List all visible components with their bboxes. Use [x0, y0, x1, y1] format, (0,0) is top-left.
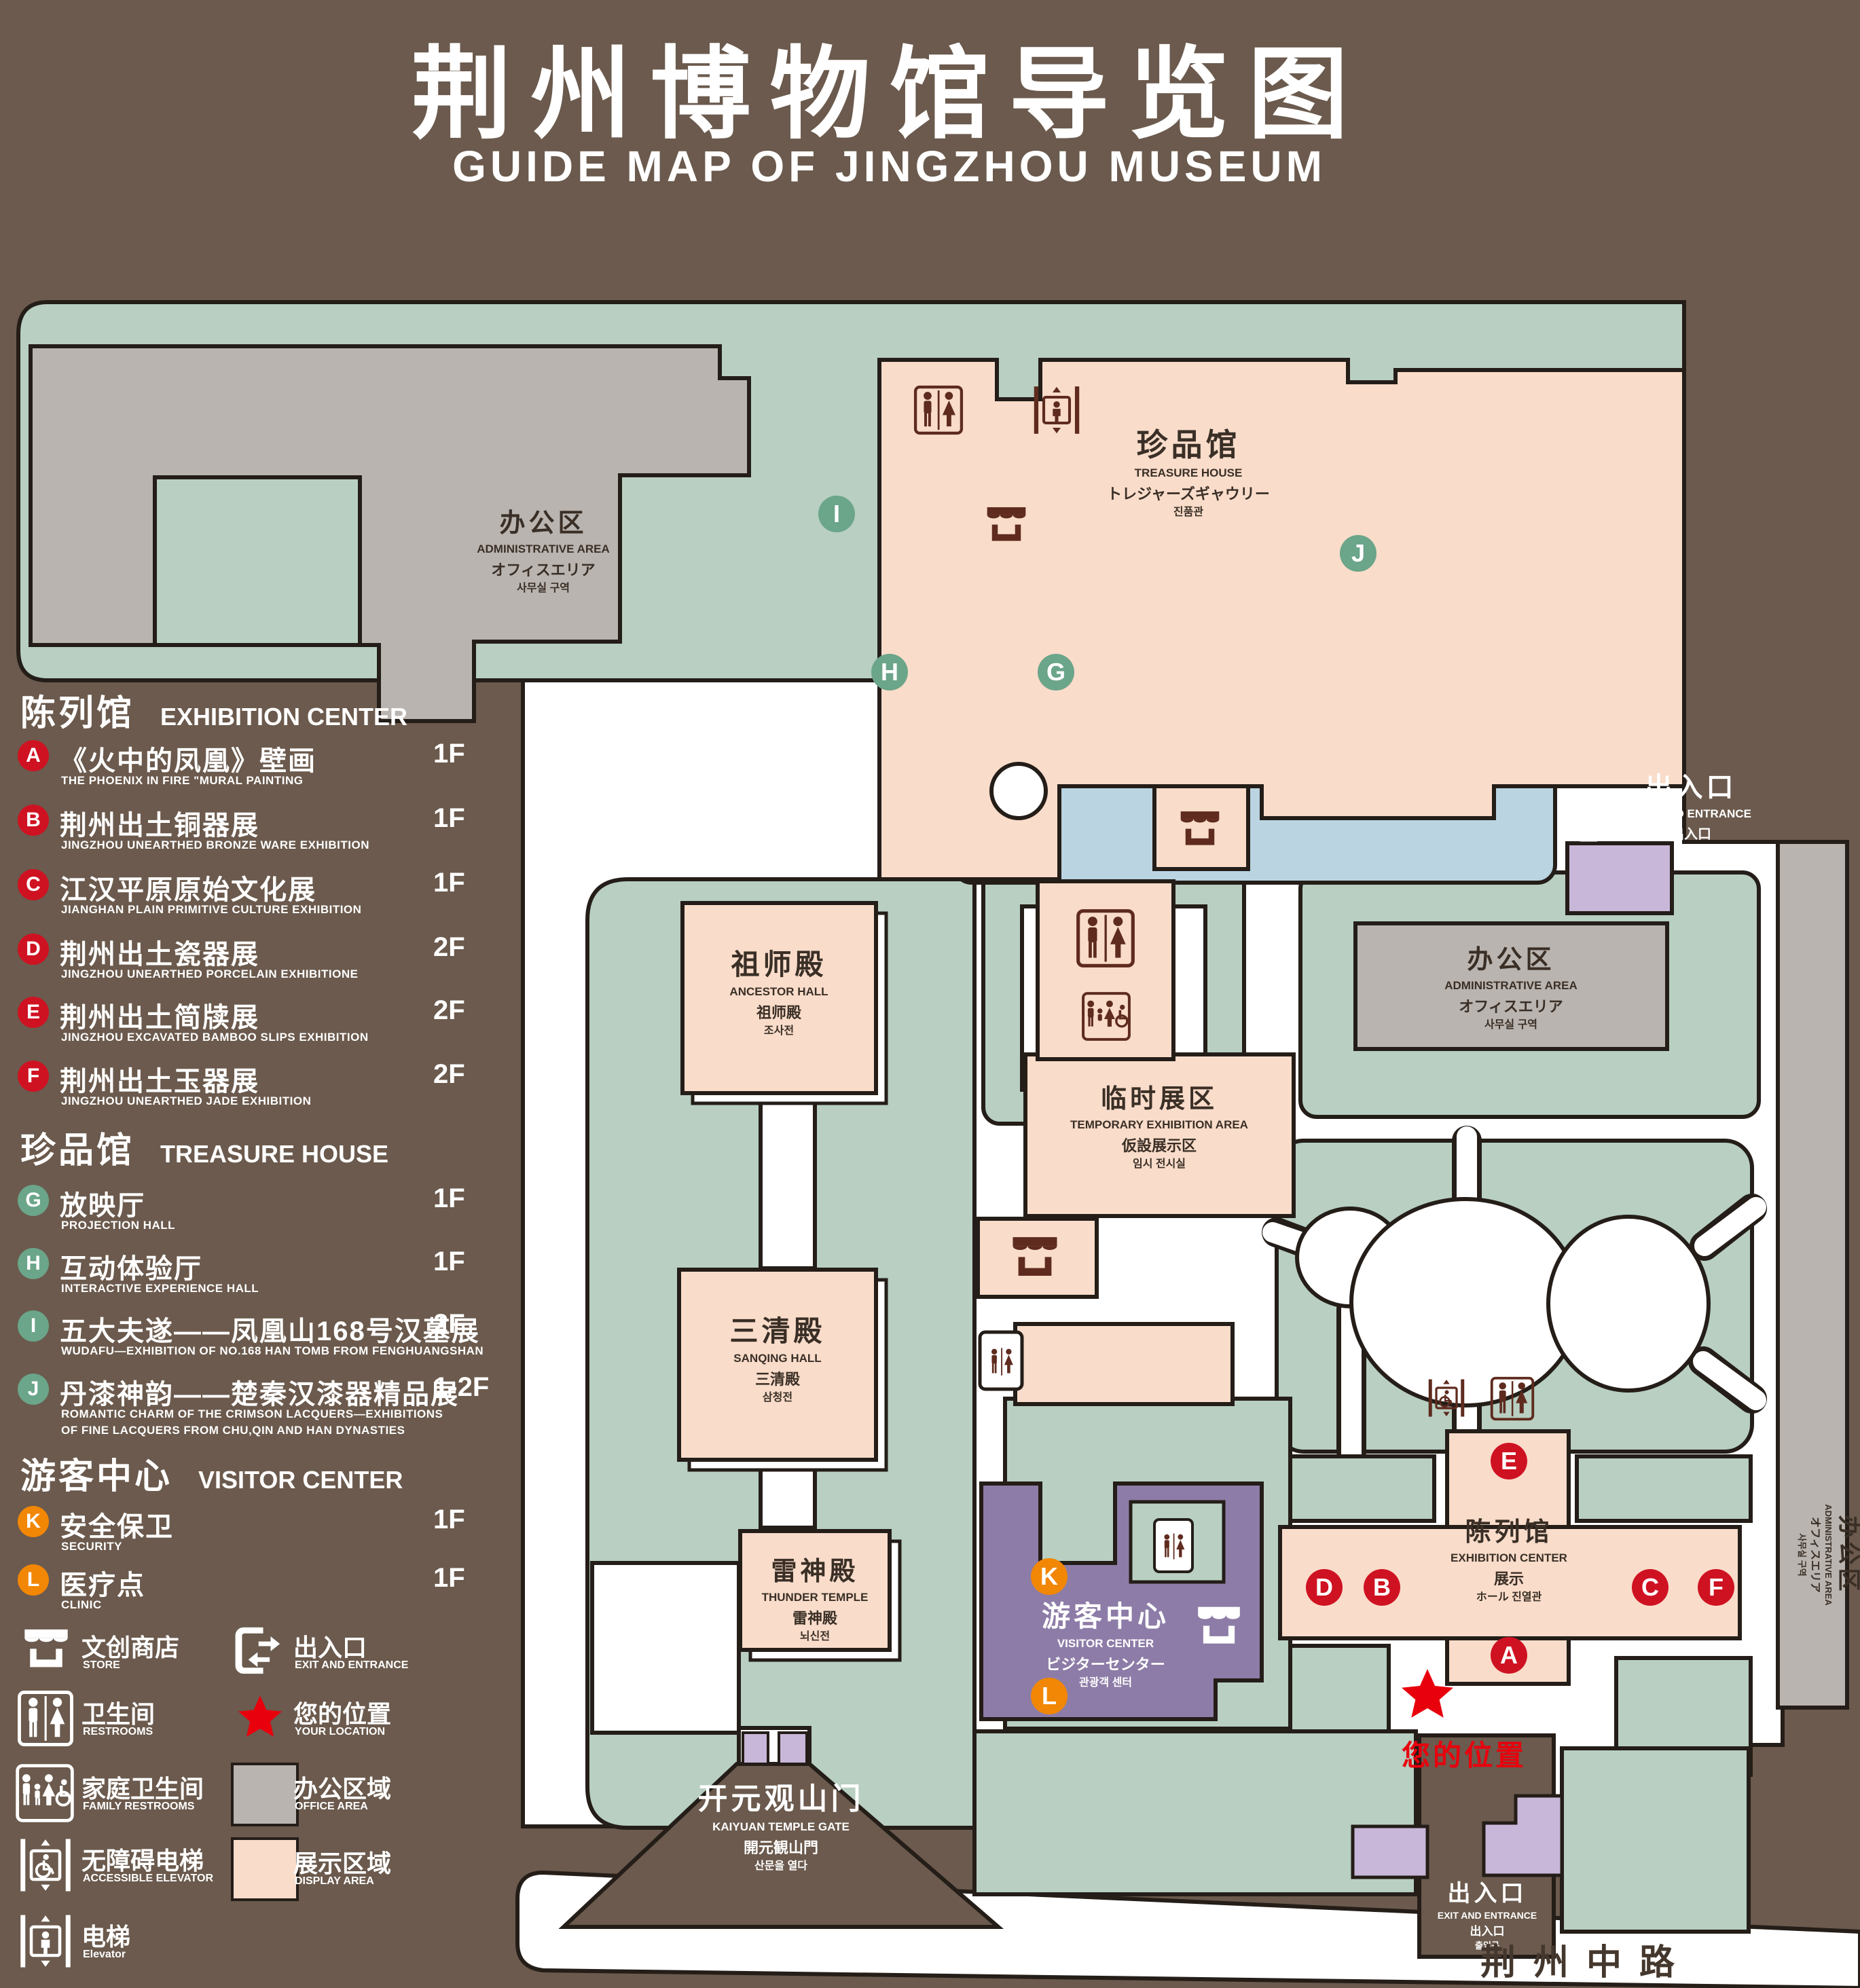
label-en: ADMINISTRATIVE AREA	[1375, 980, 1647, 991]
symbol-sublabel: ACCESSIBLE ELEVATOR	[83, 1873, 213, 1885]
legend-item-label[interactable]: 互动体验厅	[60, 1247, 202, 1286]
label-ja: 祖师殿	[643, 1006, 915, 1020]
legend-item-floor: 1F	[433, 739, 465, 769]
section-title-en: TREASURE HOUSE	[160, 1140, 388, 1168]
legend-item-floor: 1F	[433, 868, 465, 898]
your-location-label: 您的位置	[1402, 1733, 1527, 1774]
label-ja: トレジャーズギャウリー	[1053, 487, 1324, 502]
label-temporary-exhibition: 临时展区 TEMPORARY EXHIBITION AREA 仮設展示区 임시 …	[1023, 1086, 1295, 1170]
store-icon	[17, 1624, 75, 1676]
legend-item-sublabel: CLINIC	[61, 1598, 102, 1612]
label-ja: 開元観山門	[645, 1841, 917, 1856]
your-location-star-icon	[234, 1692, 287, 1745]
green-wall-band	[974, 1731, 1416, 1894]
label-en: TREASURE HOUSE	[1053, 467, 1324, 479]
label-en: TEMPORARY EXHIBITION AREA	[1023, 1119, 1295, 1130]
badge-letter: C	[26, 873, 41, 896]
legend-item-sublabel: ROMANTIC CHARM OF THE CRIMSON LACQUERS—E…	[61, 1407, 443, 1421]
legend-badge-c[interactable]: C	[18, 869, 49, 900]
store-icon	[1177, 801, 1223, 858]
label-en: SANQING HALL	[642, 1352, 913, 1364]
label-en: KAIYUAN TEMPLE GATE	[645, 1821, 917, 1833]
map-badge-j[interactable]: J	[1340, 535, 1376, 572]
legend-badge-e[interactable]: E	[18, 997, 49, 1028]
badge-letter: D	[1315, 1573, 1333, 1602]
badge-letter: H	[881, 658, 898, 686]
legend-item-floor: 1F	[433, 1505, 465, 1535]
symbol-label: 文创商店	[81, 1628, 179, 1663]
legend-item-floor: 1F	[433, 1183, 465, 1214]
symbol-sublabel: FAMILY RESTROOMS	[83, 1801, 194, 1813]
label-sanqing-hall: 三清殿 SANQING HALL 三清殿 삼청전	[642, 1317, 913, 1403]
map-badge-c[interactable]: C	[1632, 1569, 1668, 1606]
legend-item-label[interactable]: 安全保卫	[60, 1505, 174, 1544]
accessible-elevator-icon	[17, 1833, 74, 1897]
badge-letter: G	[25, 1189, 41, 1212]
exit-bottom-platform	[1353, 1826, 1427, 1877]
label-en: ADMINISTRATIVE AREA	[1824, 1426, 1833, 1684]
badge-letter: G	[1046, 658, 1065, 686]
restrooms-icon	[17, 1688, 74, 1749]
legend-badge-i[interactable]: I	[18, 1310, 49, 1342]
legend-section-treasure: 珍品馆TREASURE HOUSE	[20, 1122, 388, 1173]
badge-letter: I	[31, 1314, 36, 1338]
badge-letter: L	[1042, 1682, 1057, 1710]
map-badge-f[interactable]: F	[1698, 1569, 1734, 1606]
symbol-label: 家庭卫生间	[81, 1769, 204, 1805]
badge-letter: L	[27, 1568, 39, 1591]
legend-item-label[interactable]: 《火中的凤凰》壁画	[60, 739, 316, 778]
store-icon	[1008, 1228, 1061, 1289]
legend-item-sublabel: THE PHOENIX IN FIRE "MURAL PAINTING	[61, 774, 303, 788]
label-zh: 祖师殿	[643, 951, 915, 979]
label-zh: 出入口	[1385, 1882, 1589, 1905]
green-wall-band	[1562, 1748, 1749, 1932]
legend-section-exhibition: 陈列馆EXHIBITION CENTER	[20, 684, 407, 735]
legend-badge-f[interactable]: F	[18, 1061, 49, 1092]
legend-item-floor: 2F	[433, 1059, 465, 1090]
label-treasure-house: 珍品馆 TREASURE HOUSE トレジャーズギャウリー 진품관	[1053, 429, 1324, 518]
legend-item-sublabel: JINGZHOU UNEARTHED JADE EXHIBITION	[61, 1094, 311, 1108]
badge-letter: F	[1709, 1573, 1724, 1602]
green-block	[1577, 1456, 1751, 1521]
map-badge-h[interactable]: H	[871, 654, 908, 691]
symbol-sublabel: OFFICE AREA	[295, 1801, 368, 1813]
restrooms-icon	[985, 1338, 1019, 1385]
legend-item-label[interactable]: 荆州出土瓷器展	[60, 932, 259, 972]
legend-item-floor: 2F	[433, 932, 465, 963]
family-restroom-icon	[1081, 988, 1131, 1045]
label-ja: 雷神殿	[679, 1611, 951, 1626]
green-block	[1269, 1456, 1434, 1521]
restrooms-icon	[1490, 1366, 1535, 1431]
office-area-swatch	[231, 1763, 299, 1826]
label-ja: 三清殿	[642, 1372, 913, 1387]
map-badge-b[interactable]: B	[1364, 1569, 1400, 1606]
label-ko: ホール 진열관	[1373, 1592, 1645, 1603]
label-zh: 雷神殿	[679, 1559, 951, 1585]
map-badge-a[interactable]: A	[1491, 1637, 1527, 1674]
label-zh: 办公区	[407, 511, 679, 536]
legend-badge-a[interactable]: A	[18, 740, 49, 771]
symbol-label: 出入口	[293, 1628, 367, 1663]
badge-letter: J	[28, 1378, 39, 1401]
label-zh: 出入口	[1603, 774, 1779, 801]
legend-badge-l[interactable]: L	[18, 1564, 49, 1596]
label-ja: 仮設展示区	[1023, 1139, 1295, 1154]
label-ja: オフィスエリア	[407, 563, 679, 578]
restrooms-icon	[913, 377, 964, 443]
symbol-sublabel: DISPLAY AREA	[295, 1875, 374, 1888]
badge-letter: D	[26, 938, 41, 961]
label-zh: 陈列馆	[1373, 1520, 1645, 1545]
label-ja: オフィスエリア	[1375, 999, 1647, 1014]
label-ko: 사무실 구역	[1375, 1020, 1647, 1031]
label-en: ADMINISTRATIVE AREA	[407, 543, 679, 555]
label-ja: 出入口	[1603, 828, 1779, 841]
map-badge-g[interactable]: G	[1038, 654, 1074, 691]
section-title-en: VISITOR CENTER	[198, 1466, 403, 1494]
map-badge-k[interactable]: K	[1031, 1558, 1068, 1595]
label-en: EXIT AND ENTRANCE	[1603, 808, 1779, 820]
legend-item-label[interactable]: 五大夫遂——凤凰山168号汉墓展	[60, 1309, 480, 1348]
label-ko: 출입구	[1603, 847, 1779, 858]
section-title-zh: 游客中心	[20, 1457, 172, 1496]
symbol-sublabel: RESTROOMS	[83, 1726, 153, 1738]
label-admin-right: 办公区 ADMINISTRATIVE AREA オフィスエリア 사무실 구역	[1375, 947, 1647, 1031]
label-zh: 三清殿	[642, 1317, 913, 1346]
legend-item-sublabel: OF FINE LACQUERS FROM CHU,QIN AND HAN DY…	[61, 1424, 405, 1437]
map-badge-d[interactable]: D	[1306, 1569, 1343, 1606]
label-zh: 办公区	[1837, 1426, 1860, 1684]
label-en: EXIT AND ENTRANCE	[1385, 1911, 1589, 1920]
store-icon	[1194, 1600, 1244, 1654]
map-badge-i[interactable]: I	[818, 496, 855, 532]
your-location-star-icon	[1396, 1665, 1459, 1727]
legend-item-floor: 2F	[433, 1309, 465, 1340]
label-zh: 临时展区	[1023, 1086, 1295, 1112]
legend-badge-d[interactable]: D	[18, 934, 49, 965]
label-ja: ビジターセンター	[970, 1657, 1241, 1672]
legend-item-sublabel: JINGZHOU UNEARTHED PORCELAIN EXHIBITIONE	[61, 968, 358, 981]
label-ko: 진품관	[1053, 507, 1324, 518]
symbol-label: 展示区域	[293, 1844, 391, 1879]
symbol-sublabel: EXIT AND ENTRANCE	[295, 1659, 408, 1672]
label-kaiyuan-gate: 开元观山门 KAIYUAN TEMPLE GATE 開元観山門 산문을 열다	[645, 1784, 917, 1872]
legend-section-visitor: 游客中心VISITOR CENTER	[20, 1448, 403, 1498]
label-ko: 조사전	[643, 1026, 915, 1037]
label-exhibition-center: 陈列馆 EXHIBITION CENTER 展示 ホール 진열관	[1373, 1520, 1645, 1603]
label-ancestor-hall: 祖师殿 ANCESTOR HALL 祖师殿 조사전	[643, 951, 915, 1037]
label-ko: 관광객 센터	[970, 1678, 1241, 1689]
gate-pillar	[779, 1733, 807, 1764]
legend-item-floor: 1-2F	[433, 1372, 489, 1403]
label-thunder-temple: 雷神殿 THUNDER TEMPLE 雷神殿 뇌신전	[679, 1559, 951, 1642]
symbol-label: 办公区域	[293, 1769, 391, 1805]
legend-item-sublabel: JINGZHOU UNEARTHED BRONZE WARE EXHIBITIO…	[61, 839, 369, 852]
legend-badge-k[interactable]: K	[18, 1506, 49, 1537]
label-zh: 珍品馆	[1053, 429, 1324, 460]
legend-item-label[interactable]: 医疗点	[60, 1563, 145, 1602]
family-restroom-icon	[15, 1763, 75, 1824]
label-ko: 사무실 구역	[1798, 1426, 1806, 1684]
badge-letter: J	[1351, 539, 1365, 568]
restrooms-icon	[1158, 1524, 1190, 1568]
pond-inlet	[991, 764, 1046, 818]
map-badge-l[interactable]: L	[1031, 1678, 1068, 1714]
legend-item-floor: 1F	[433, 1247, 465, 1277]
legend-item-label[interactable]: 江汉平原原始文化展	[60, 868, 316, 907]
store-icon	[983, 497, 1029, 554]
legend-item-label[interactable]: 荆州出土玉器展	[60, 1059, 259, 1099]
legend-item-label[interactable]: 荆州出土简牍展	[60, 995, 259, 1035]
legend-item-floor: 2F	[433, 995, 465, 1026]
symbol-label: 无障碍电梯	[81, 1841, 204, 1877]
accessible-elevator-icon	[1426, 1365, 1467, 1431]
label-ko: 사무실 구역	[407, 583, 679, 594]
label-admin-strip: 办公区 ADMINISTRATIVE AREA オフィスエリア 사무실 구역	[1765, 1426, 1860, 1684]
display-area-swatch	[231, 1837, 299, 1901]
section-title-zh: 陈列馆	[20, 694, 134, 733]
symbol-sublabel: YOUR LOCATION	[295, 1726, 385, 1738]
legend-item-label[interactable]: 放映厅	[60, 1183, 145, 1223]
badge-letter: I	[833, 500, 840, 528]
section-title-zh: 珍品馆	[20, 1131, 134, 1171]
badge-letter: A	[1500, 1641, 1518, 1670]
legend-badge-h[interactable]: H	[18, 1248, 49, 1279]
label-exit-top: 出入口 EXIT AND ENTRANCE 出入口 출입구	[1603, 774, 1779, 858]
badge-letter: E	[26, 1001, 40, 1024]
label-zh: 开元观山门	[645, 1784, 917, 1814]
exit-entrance-icon	[230, 1623, 285, 1678]
label-admin-topleft: 办公区 ADMINISTRATIVE AREA オフィスエリア 사무실 구역	[407, 511, 679, 594]
legend-item-sublabel: SECURITY	[61, 1540, 122, 1553]
section-title-en: EXHIBITION CENTER	[160, 703, 407, 731]
legend-badge-g[interactable]: G	[18, 1185, 49, 1216]
gate-pillar	[743, 1733, 768, 1764]
legend-item-floor: 1F	[433, 1563, 465, 1594]
label-en: THUNDER TEMPLE	[679, 1591, 951, 1603]
badge-letter: B	[26, 809, 41, 832]
legend-item-sublabel: WUDAFU—EXHIBITION OF NO.168 HAN TOMB FRO…	[61, 1344, 484, 1358]
label-ko: 뇌신전	[679, 1632, 951, 1642]
badge-letter: F	[27, 1065, 39, 1088]
label-ko: 산문을 열다	[645, 1861, 917, 1872]
legend-item-sublabel: PROJECTION HALL	[61, 1219, 175, 1232]
elevator-icon	[17, 1909, 74, 1973]
badge-letter: H	[26, 1252, 41, 1275]
road-name: 荆州中路	[1480, 1934, 1692, 1985]
legend-item-sublabel: INTERACTIVE EXPERIENCE HALL	[61, 1282, 259, 1295]
symbol-sublabel: STORE	[83, 1659, 120, 1672]
badge-letter: C	[1641, 1573, 1659, 1602]
label-ja: 展示	[1373, 1572, 1645, 1587]
symbol-label: 您的位置	[293, 1695, 391, 1730]
badge-letter: A	[26, 744, 41, 767]
restrooms-icon	[1076, 900, 1135, 976]
page-subtitle: GUIDE MAP OF JINGZHOU MUSEUM	[0, 141, 1779, 191]
label-en: ANCESTOR HALL	[643, 986, 915, 997]
legend-item-sublabel: JINGZHOU EXCAVATED BAMBOO SLIPS EXHIBITI…	[61, 1031, 369, 1044]
symbol-sublabel: Elevator	[83, 1949, 126, 1961]
legend-item-floor: 1F	[433, 803, 465, 834]
legend-item-label[interactable]: 丹漆神韵——楚秦汉漆器精品展	[60, 1372, 459, 1412]
legend-item-sublabel: JIANGHAN PLAIN PRIMITIVE CULTURE EXHIBIT…	[61, 903, 361, 917]
label-ko: 임시 전시실	[1023, 1159, 1295, 1170]
badge-letter: K	[26, 1510, 41, 1533]
elevator-icon	[1031, 377, 1082, 443]
corridor-building	[1015, 1324, 1233, 1404]
label-ko: 삼청전	[642, 1393, 913, 1403]
guide-map-page: 荆州博物馆导览图 GUIDE MAP OF JINGZHOU MUSEUM 陈列…	[0, 0, 1860, 1988]
symbol-label: 卫生间	[81, 1695, 155, 1730]
legend-badge-j[interactable]: J	[18, 1374, 49, 1405]
badge-letter: B	[1373, 1573, 1391, 1602]
label-ja: オフィスエリア	[1809, 1426, 1820, 1684]
label-en: EXHIBITION CENTER	[1373, 1552, 1645, 1564]
badge-letter: E	[1501, 1447, 1517, 1475]
badge-letter: K	[1040, 1562, 1058, 1591]
legend-item-label[interactable]: 荆州出土铜器展	[60, 803, 259, 843]
symbol-label: 电梯	[81, 1917, 130, 1953]
legend-badge-b[interactable]: B	[18, 805, 49, 836]
map-badge-e[interactable]: E	[1491, 1443, 1527, 1479]
label-zh: 办公区	[1375, 947, 1647, 973]
page-title: 荆州博物馆导览图	[0, 12, 1779, 158]
exit-entrance-icon	[1570, 800, 1615, 846]
